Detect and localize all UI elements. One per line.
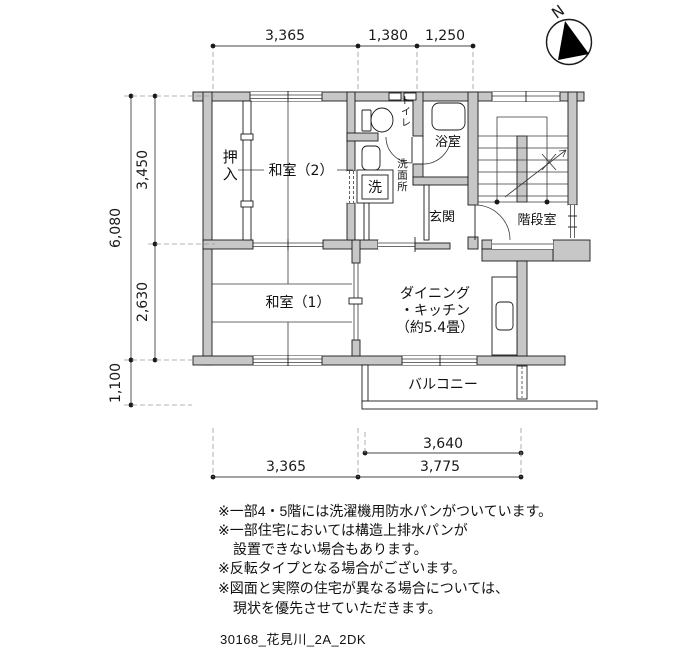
wall-bath-bottom (413, 177, 468, 185)
oshiire-partition (241, 101, 253, 240)
balcony-structure (362, 365, 597, 409)
note-line: ※反転タイプとなる場合がございます。 (218, 558, 466, 578)
window-washitsu1-bottom (253, 355, 322, 366)
wall-bottom (193, 356, 565, 365)
compass: N (547, 1, 592, 64)
dim-top-1: 3,365 (265, 28, 305, 44)
wall-mid-4 (482, 240, 492, 249)
tatami-lines (212, 101, 353, 356)
wall-w1dk-top-stub (352, 240, 360, 263)
note-line: ※一部住宅においては構造上排水パンが (218, 520, 468, 540)
walls (193, 92, 590, 365)
wall-stair-divider (517, 136, 527, 202)
note-line: ※一部4・5階には洗濯機用防水パンがついています。 (218, 501, 552, 521)
dim-top-3: 1,250 (425, 28, 465, 44)
wall-step-block (482, 249, 553, 261)
toilet-icon (362, 108, 393, 132)
dimension-bottom: 3,640 3,365 3,775 (211, 428, 524, 479)
label-genkan: 玄関 (429, 210, 455, 225)
wall-w2-right-lower (347, 203, 355, 240)
window-dk-balcony (402, 355, 477, 366)
wall-mid-thin (415, 243, 450, 249)
fusuma-washitsu (253, 239, 323, 250)
label-oshiire: 押入 (221, 149, 237, 183)
wall-w1dk-bottom-stub (352, 340, 360, 356)
note-line: ※図面と実際の住宅が異なる場合については、 (218, 578, 509, 598)
wall-mid-right-block (553, 240, 590, 261)
wall-w2-right-upper (347, 92, 355, 171)
stair-up-arrow (505, 150, 566, 197)
wall-toilet-stub (347, 133, 378, 141)
wall-stair-left-lower (468, 237, 478, 249)
window-stair-right (568, 205, 577, 238)
sliding-door-washitsu1-dk (349, 263, 362, 340)
window-stair-bottom (492, 240, 553, 249)
dim-bottom-right: 3,775 (420, 459, 460, 475)
dim-left-balcony: 1,100 (108, 363, 124, 403)
note-line: 設置できない場合もあります。 (218, 539, 428, 559)
wall-dk-right (517, 261, 527, 356)
label-balcony: バルコニー (408, 377, 478, 393)
dim-left-lower: 2,630 (135, 282, 151, 322)
label-washitsu1: 和室（1） (266, 294, 331, 311)
sliding-door-washitsu2 (347, 171, 355, 203)
dim-bottom-balcony: 3,640 (423, 436, 463, 452)
wall-mid-2 (323, 240, 378, 249)
bathtub-icon (432, 103, 465, 130)
label-dk-line3: （約5.4畳） (396, 320, 474, 336)
window-stair-top (492, 91, 560, 102)
dim-left-upper: 3,450 (135, 150, 151, 190)
wall-stair-left-upper (468, 92, 478, 205)
label-bath: 浴室 (435, 134, 461, 150)
label-washroom: 洗面所 (396, 158, 407, 193)
compass-needle (558, 21, 589, 60)
window-washitsu2-top (250, 91, 322, 102)
dim-top-2: 1,380 (368, 28, 408, 44)
washroom-corridor-divider (364, 203, 369, 240)
wall-left (203, 92, 212, 365)
plan-id-footer: 30168_花見川_2A_2DK (220, 629, 366, 648)
label-dk-line1: ダイニング (400, 286, 470, 302)
label-dk-line2: ・キッチン (400, 303, 470, 319)
entrance-door (475, 205, 510, 240)
door-corridor-dk (378, 237, 415, 252)
dim-left-total: 6,080 (108, 208, 124, 248)
dimension-top: 3,365 1,380 1,250 (211, 28, 476, 90)
wall-stair-right-upper (568, 92, 577, 205)
note-line: 現状を優先させていただきます。 (218, 598, 442, 618)
balcony-fence (362, 401, 597, 409)
label-stairwell: 階段室 (517, 212, 556, 228)
label-laundry: 洗 (368, 180, 382, 196)
stair-route-dot (495, 200, 500, 205)
label-washitsu2: 和室（2） (269, 162, 334, 179)
wall-mid-1 (203, 240, 253, 249)
kitchen-counter (492, 277, 517, 355)
floorplan-page: 和室（2） 浴室 玄関 階段室 和室（1） ダイニング ・キッチン （約5.4畳… (0, 0, 700, 650)
stair-route-dot (545, 200, 550, 205)
balcony-left-wall (362, 365, 368, 403)
washbasin-icon (362, 146, 380, 170)
label-toilet: トイレ (398, 95, 409, 128)
dim-bottom-left: 3,365 (266, 459, 306, 475)
